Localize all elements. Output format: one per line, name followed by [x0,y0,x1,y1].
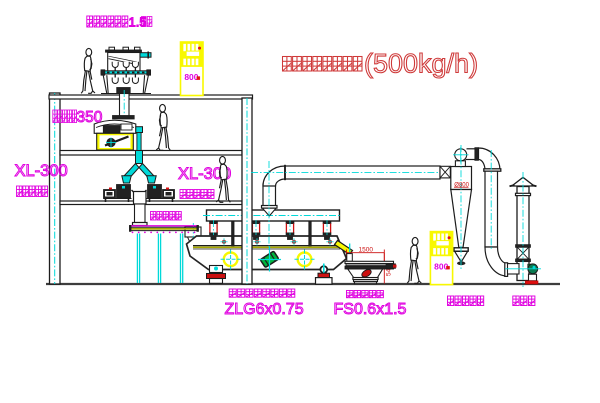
svg-text:XL-300: XL-300 [15,162,68,180]
svg-text:350: 350 [77,109,103,126]
svg-text:1500: 1500 [359,247,374,254]
svg-text:(500kg/h): (500kg/h) [364,49,478,79]
svg-text:ZLG6x0.75: ZLG6x0.75 [225,301,304,318]
svg-text:FS0.6x1.5: FS0.6x1.5 [334,301,407,318]
